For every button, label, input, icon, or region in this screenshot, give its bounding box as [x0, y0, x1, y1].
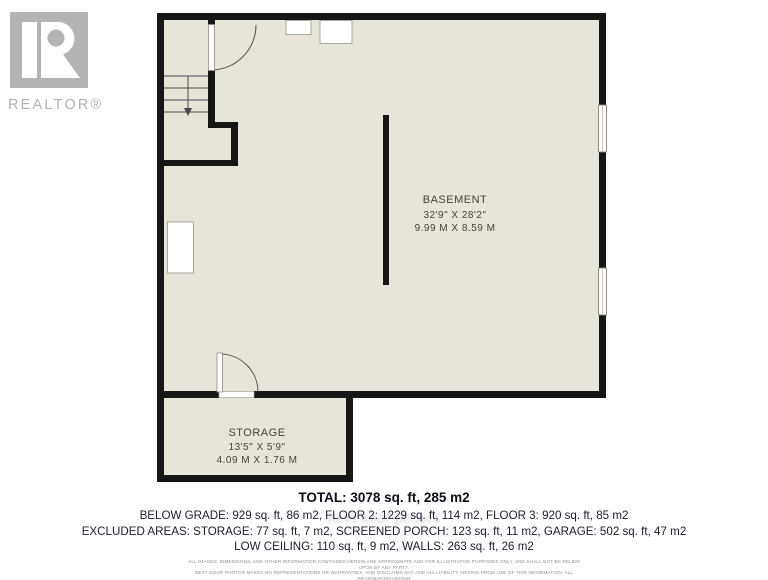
door-leaf [209, 25, 215, 71]
basement-floor [160, 16, 603, 394]
wall-top [157, 13, 606, 20]
disclaimer-line: NEXT DOOR PHOTOS MAKES NO REPRESENTATION… [184, 570, 583, 580]
wall-left [157, 13, 164, 482]
summary-floors: BELOW GRADE: 929 sq. ft, 86 m2, FLOOR 2:… [0, 508, 768, 524]
room-dims-storage-metric: 4.09 M X 1.76 M [217, 455, 298, 466]
floor-plan-page: REALTOR® [0, 0, 768, 580]
wall-bottom-east [254, 391, 606, 398]
fixture-top-large [320, 21, 352, 44]
wall-bottom-west [157, 391, 219, 398]
area-summary: TOTAL: 3078 sq. ft, 285 m2 BELOW GRADE: … [0, 490, 768, 580]
wall-storage-bottom [157, 475, 353, 482]
summary-excluded: EXCLUDED AREAS: STORAGE: 77 sq. ft, 7 m2… [0, 524, 768, 540]
door-threshold [219, 392, 254, 398]
wall-understair-east [231, 122, 238, 166]
summary-other: LOW CEILING: 110 sq. ft, 9 m2, WALLS: 26… [0, 539, 768, 555]
summary-total: TOTAL: 3078 sq. ft, 285 m2 [0, 490, 768, 505]
room-dims-basement-imperial: 32'9" X 28'2" [423, 210, 486, 221]
wall-stair-east-lower [208, 70, 215, 122]
room-label-basement: BASEMENT [423, 194, 488, 206]
wall-storage-right [346, 391, 353, 482]
disclaimer-line: ALL IMAGES, DIMENSIONS, AND OTHER INFORM… [184, 559, 583, 570]
fixture-left-wall [168, 222, 194, 273]
room-label-storage: STORAGE [228, 427, 285, 439]
door-leaf [217, 353, 223, 392]
room-dims-storage-imperial: 13'5" X 5'9" [229, 442, 286, 453]
wall-right [599, 13, 606, 398]
room-dims-basement-metric: 9.99 M X 8.59 M [415, 223, 496, 234]
wall-understair-bottom [157, 160, 238, 166]
wall-center-partition [383, 115, 389, 285]
floor-fill [160, 16, 603, 479]
fixture-top-small [286, 21, 311, 35]
disclaimer: ALL IMAGES, DIMENSIONS, AND OTHER INFORM… [184, 559, 583, 580]
